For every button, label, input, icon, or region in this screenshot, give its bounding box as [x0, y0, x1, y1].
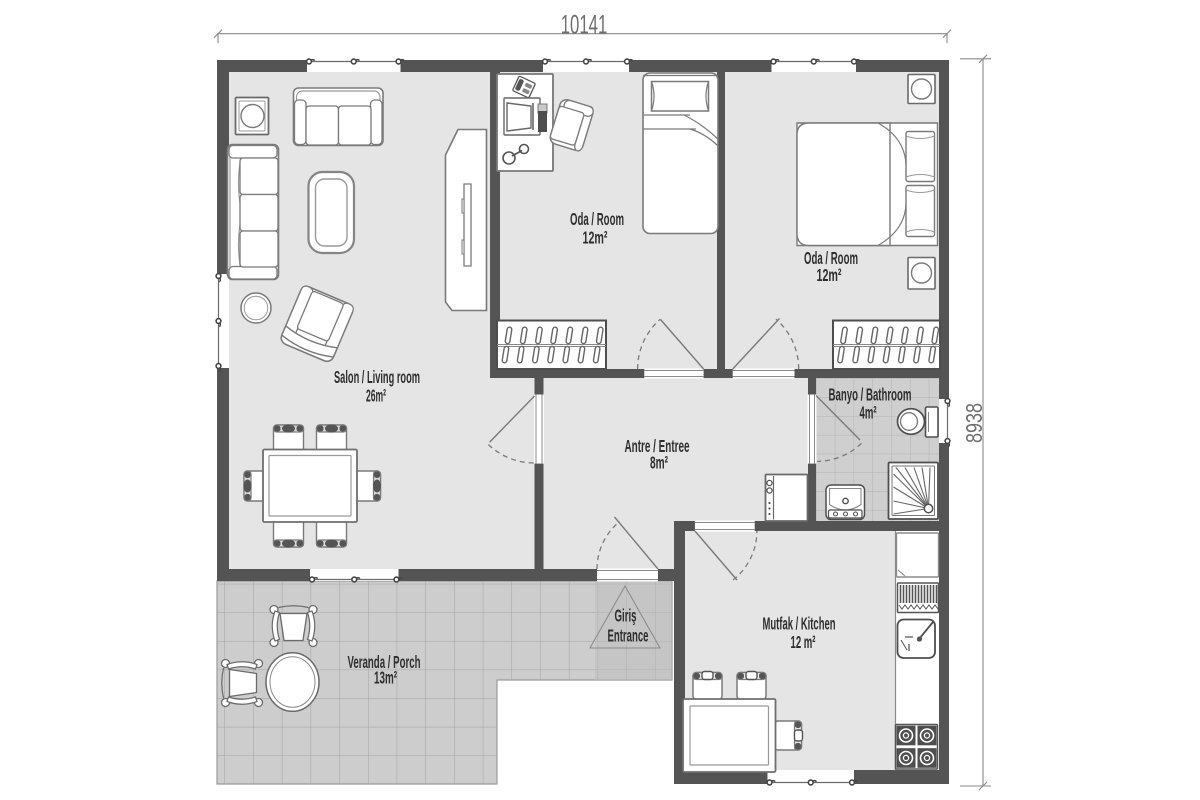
svg-text:Banyo / Bathroom: Banyo / Bathroom	[829, 385, 912, 405]
svg-text:8938: 8938	[961, 403, 987, 443]
svg-text:Giriş: Giriş	[615, 606, 637, 626]
svg-text:Oda / Room: Oda / Room	[570, 209, 624, 229]
svg-text:12m²: 12m²	[817, 265, 842, 285]
svg-text:10141: 10141	[561, 10, 608, 40]
svg-text:8m²: 8m²	[650, 453, 668, 473]
svg-text:12m²: 12m²	[583, 228, 608, 248]
svg-text:Entrance: Entrance	[608, 626, 649, 646]
svg-text:12 m²: 12 m²	[791, 632, 816, 652]
svg-text:4m²: 4m²	[860, 403, 877, 423]
svg-text:26m²: 26m²	[366, 386, 386, 406]
svg-text:Salon / Living room: Salon / Living room	[334, 367, 420, 387]
svg-text:Mutfak / Kitchen: Mutfak / Kitchen	[763, 614, 836, 634]
svg-text:13m²: 13m²	[374, 668, 397, 688]
